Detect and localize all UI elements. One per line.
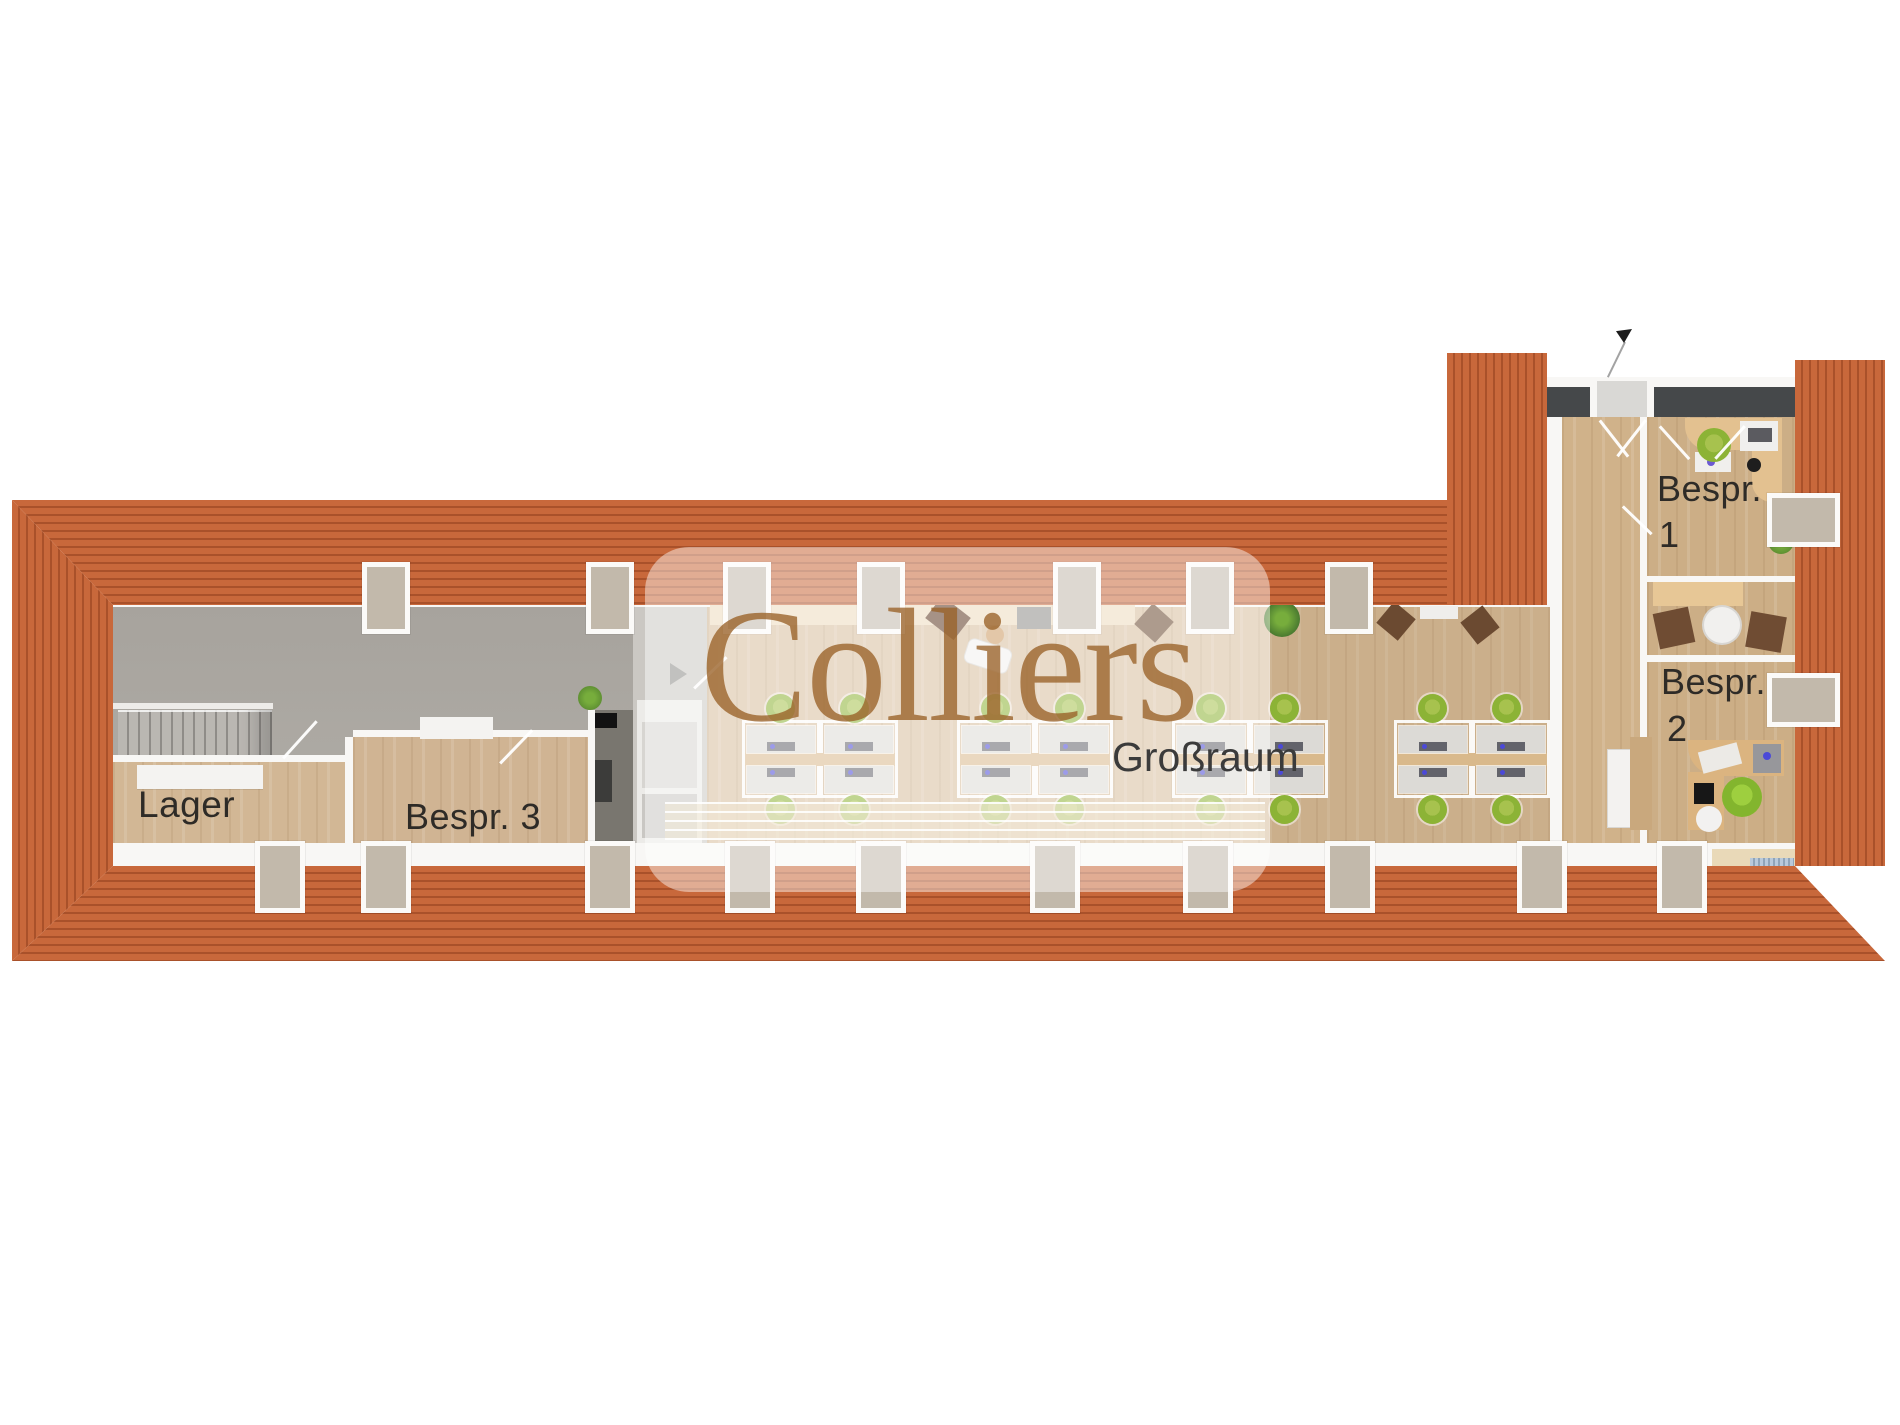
entrance-frame-left [1590, 377, 1597, 417]
monitor [1497, 742, 1525, 751]
lounge-table [1704, 607, 1740, 643]
office-chair [1418, 694, 1447, 723]
roof-window [585, 841, 635, 913]
roof-window [1517, 841, 1567, 913]
bespr3-whiteboard [420, 717, 493, 739]
entrance-door [1597, 381, 1647, 417]
desk [1399, 726, 1467, 753]
bespr2-cabinet [1608, 750, 1630, 827]
monitor-led [1500, 744, 1505, 749]
roof-window [1325, 562, 1373, 634]
bespr2-chair-green [1722, 777, 1762, 817]
roof-right-band [1795, 360, 1885, 866]
entrance-frame-right [1647, 377, 1654, 417]
office-chair [1418, 795, 1447, 824]
watermark-brand: Colliers [700, 586, 1197, 748]
wing-top-wall-right [1654, 387, 1795, 417]
roof-ne-block [1447, 353, 1547, 605]
desk [1399, 766, 1467, 793]
bespr3-wall-left [345, 737, 353, 843]
bespr1-monitor [1748, 428, 1772, 442]
room-label-bespr2-line1: Bespr. [1661, 664, 1766, 700]
room-label-grossraum: Großraum [1112, 737, 1299, 778]
room-label-lager: Lager [138, 786, 235, 823]
bespr2-monitor-led [1763, 752, 1771, 760]
lager-wall-top [113, 755, 345, 762]
stair-rail [113, 703, 273, 709]
floorplan-canvas: Lager Bespr. 3 Bespr. 1 Bespr. 2 Collier… [0, 0, 1900, 1425]
monitor [1419, 768, 1447, 777]
room-label-bespr3: Bespr. 3 [405, 799, 541, 835]
bespr2-door-panel [1630, 737, 1652, 830]
bespr2-chair-white [1696, 806, 1722, 832]
kitchen-appliance [595, 760, 612, 802]
lounge-armchair-right [1745, 611, 1787, 653]
monitor-led [1422, 744, 1427, 749]
bespr2-printer [1694, 783, 1714, 804]
office-chair [1492, 694, 1521, 723]
staircase [118, 710, 272, 760]
side-table-white [1420, 606, 1458, 619]
roof-window [1767, 673, 1840, 727]
roof-window [1657, 841, 1707, 913]
desk [1477, 766, 1545, 793]
lounge-sideboard [1653, 582, 1743, 606]
office-chair [1270, 795, 1299, 824]
monitor-led [1500, 770, 1505, 775]
roof-window [1325, 841, 1375, 913]
roof-window [361, 841, 411, 913]
cursor-leader-line [1607, 342, 1625, 378]
lounge-armchair-left [1653, 607, 1696, 650]
cursor-icon [1616, 329, 1632, 343]
desk-cluster [1397, 723, 1547, 795]
office-right-wall [1550, 607, 1562, 843]
kitchen-counter [595, 713, 617, 728]
desk [1477, 726, 1545, 753]
bespr3-wall-right [588, 710, 595, 843]
room-label-bespr1-line1: Bespr. [1657, 471, 1762, 507]
plant-office-left [578, 686, 602, 710]
room-label-bespr1-line2: 1 [1659, 517, 1680, 553]
desk-return-surface [1397, 753, 1547, 766]
room-label-bespr2-line2: 2 [1667, 711, 1688, 747]
monitor [1419, 742, 1447, 751]
office-chair [1270, 694, 1299, 723]
office-chair [1492, 795, 1521, 824]
roof-window [586, 562, 634, 634]
roof-window [255, 841, 305, 913]
roof-window [362, 562, 410, 634]
roof-window [1767, 493, 1840, 547]
monitor [1497, 768, 1525, 777]
monitor-led [1422, 770, 1427, 775]
